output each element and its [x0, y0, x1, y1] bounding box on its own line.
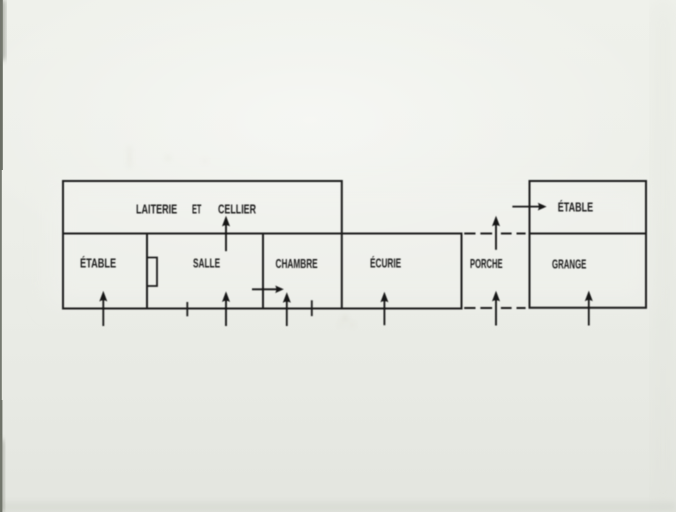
svg-text:ÉTABLE: ÉTABLE: [80, 255, 116, 270]
svg-text:ÉTABLE: ÉTABLE: [558, 199, 593, 214]
svg-text:CHAMBRE: CHAMBRE: [276, 257, 318, 271]
svg-text:PORCHE: PORCHE: [470, 257, 503, 271]
svg-text:GRANGE: GRANGE: [552, 258, 586, 272]
svg-text:LAITERIE: LAITERIE: [136, 203, 177, 217]
svg-text:ET: ET: [192, 203, 202, 217]
svg-text:CELLIER: CELLIER: [218, 203, 256, 217]
svg-text:SALLE: SALLE: [193, 257, 220, 271]
svg-text:ÉCURIE: ÉCURIE: [370, 255, 401, 270]
